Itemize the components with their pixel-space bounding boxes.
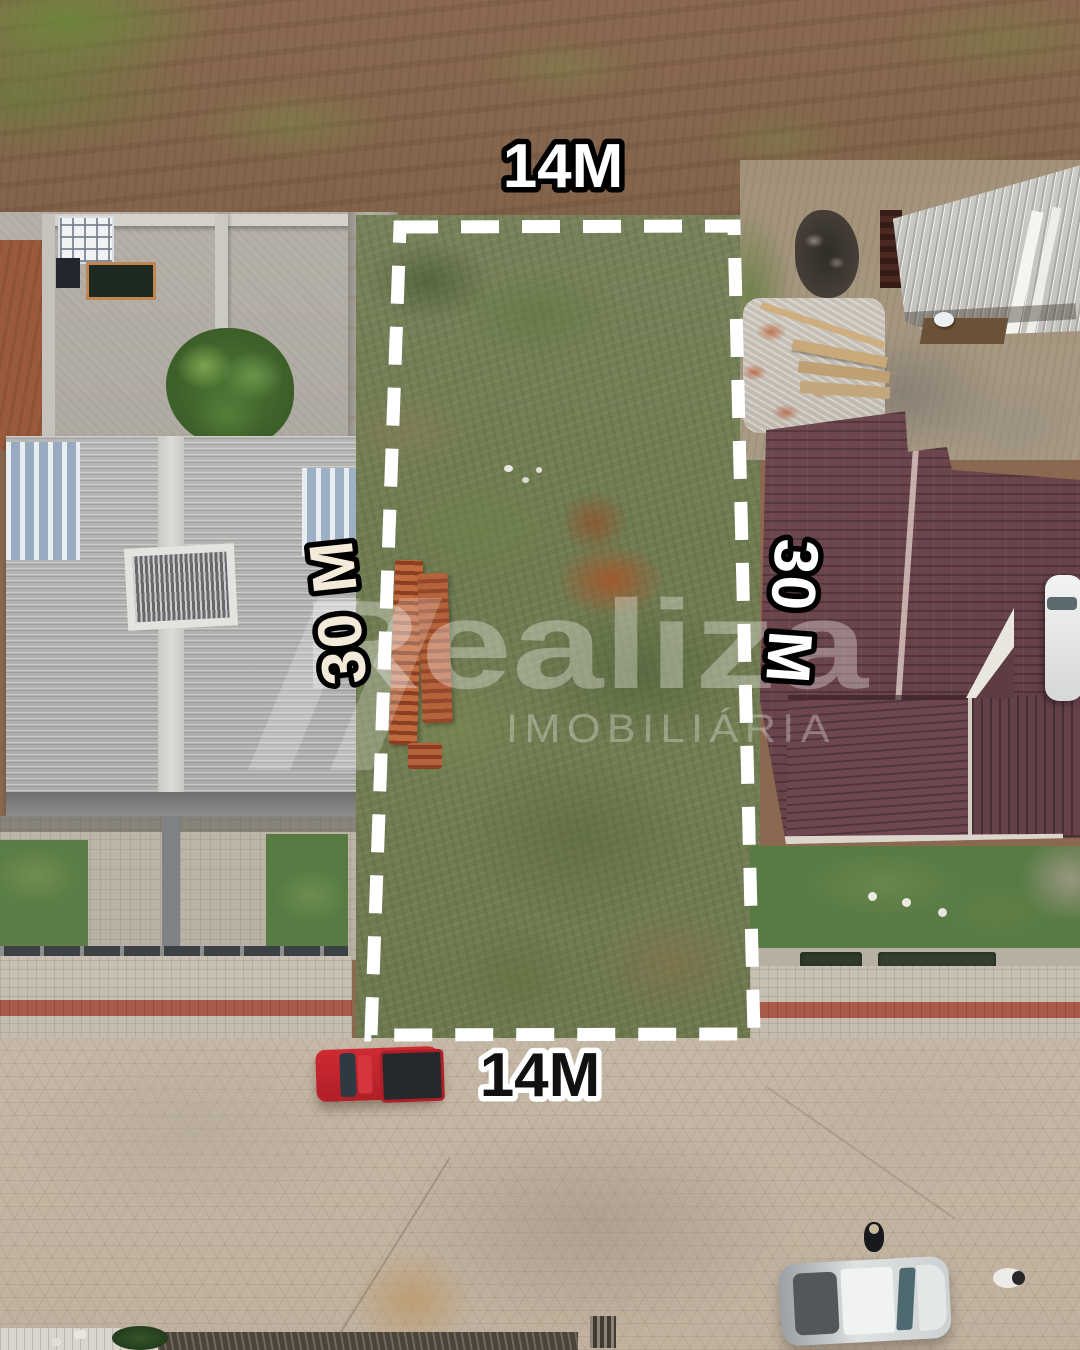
roof-lower-wing xyxy=(787,700,987,845)
dog xyxy=(993,1268,1023,1288)
white-debris xyxy=(522,477,529,483)
shed-wood-wall xyxy=(920,318,1009,344)
red-paver-stripe xyxy=(750,1002,1080,1018)
garden-light xyxy=(938,908,947,917)
car-windshield xyxy=(1047,597,1077,610)
parked-white-car xyxy=(1045,575,1080,701)
sidewalk-right xyxy=(750,966,1080,1042)
truck-cab-roof xyxy=(357,1055,372,1093)
suv-windshield xyxy=(896,1267,915,1330)
patio-pillar xyxy=(162,816,180,960)
soil-strip xyxy=(158,1332,578,1350)
roof-side-wing xyxy=(968,695,1080,835)
dark-doorway xyxy=(56,258,80,288)
red-pickup-truck xyxy=(315,1046,443,1102)
roof-fascia xyxy=(783,834,1063,845)
blue-metal-roof-section xyxy=(6,442,80,560)
dog-head xyxy=(1012,1271,1025,1285)
left-house-roof xyxy=(6,436,372,816)
suv-roof xyxy=(840,1267,895,1336)
loose-tiles xyxy=(408,743,442,769)
roof-skylight xyxy=(124,543,238,631)
small-bush xyxy=(112,1326,168,1350)
truck-bed-cover xyxy=(379,1049,445,1103)
garden-light xyxy=(868,892,877,901)
satellite-dish xyxy=(934,312,954,327)
white-grid-structure xyxy=(58,216,114,264)
left-property-yard xyxy=(0,212,356,450)
gable-inner-roof xyxy=(976,636,1014,698)
left-house-patio xyxy=(0,816,356,960)
pergola-frame xyxy=(86,262,156,300)
suv-rear-glass xyxy=(792,1271,839,1335)
pedestrian-head xyxy=(869,1224,879,1234)
drain-grate xyxy=(590,1316,616,1348)
boundary-wall-left xyxy=(42,214,55,454)
vacant-lot xyxy=(356,215,760,1045)
silver-suv xyxy=(778,1256,952,1347)
white-object xyxy=(74,1330,86,1339)
front-lawn xyxy=(0,840,88,958)
white-object xyxy=(52,1338,61,1346)
paved-street xyxy=(0,1038,1080,1350)
garden-bush xyxy=(166,328,294,448)
roof-ridge-vertical xyxy=(895,411,922,711)
sidewalk-left xyxy=(0,956,352,1042)
white-gable xyxy=(966,608,1014,698)
right-house-lawn xyxy=(750,846,1080,956)
pavement-seam xyxy=(766,1086,956,1220)
white-debris xyxy=(504,465,513,472)
pedestrian xyxy=(864,1222,884,1252)
front-lawn xyxy=(266,834,348,946)
roof-eave-shadow xyxy=(6,792,372,816)
white-debris xyxy=(536,467,542,473)
red-paver-stripe xyxy=(0,1000,352,1016)
right-house-maroon-roof xyxy=(753,403,1080,855)
garden-light xyxy=(902,898,911,907)
roof-tile-stack xyxy=(417,573,452,724)
aerial-photo: Realiza IMOBILIÁRIA 14M 30 M 30 M 14M xyxy=(0,0,1080,1350)
suv-hood xyxy=(916,1264,947,1331)
truck-windshield xyxy=(339,1053,357,1098)
